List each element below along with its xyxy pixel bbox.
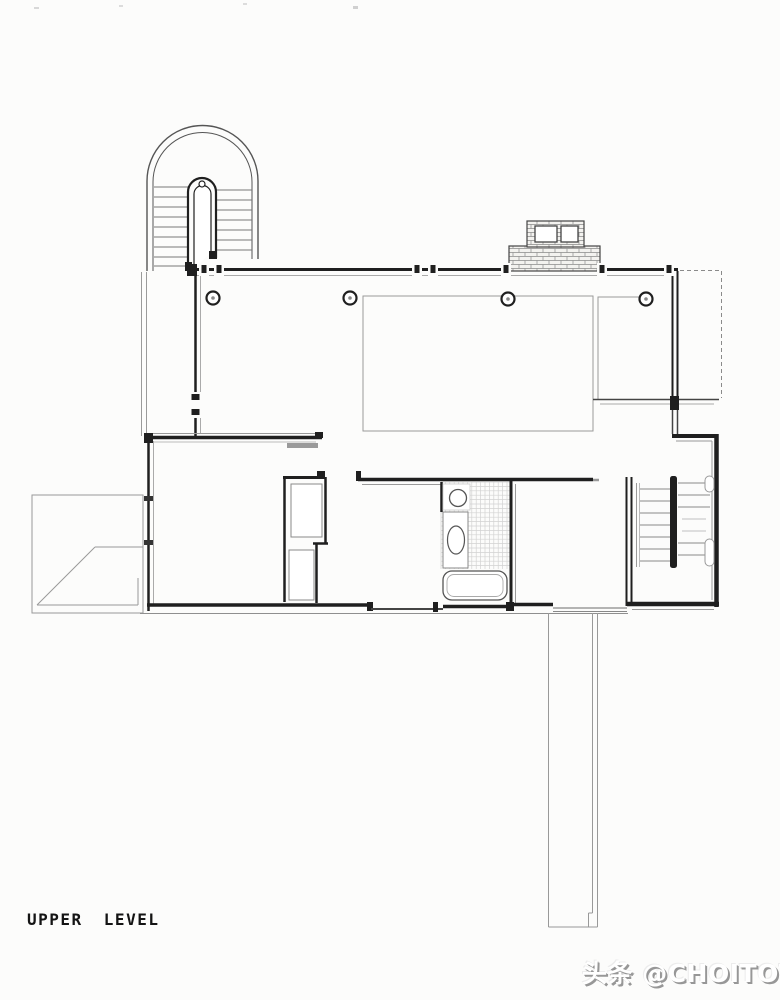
wall-end-knob (315, 432, 323, 438)
floor-plan-page: UPPER LEVEL 头条 @CHOITOTO (0, 0, 780, 1000)
stair-wall-capsule (705, 476, 714, 492)
wall-break-tick (217, 265, 222, 273)
chimney-flue (561, 226, 578, 242)
floor-plan-geometry (32, 3, 722, 927)
wall-junction-block (670, 396, 679, 410)
wall-break-tick (144, 496, 153, 501)
registration-speck (119, 5, 123, 7)
wall-corner-block (144, 433, 153, 443)
wall-break-tick (600, 265, 605, 273)
wall-break-tick (192, 394, 200, 400)
registration-speck (243, 3, 247, 5)
column-dot (644, 297, 648, 301)
column-dot (211, 296, 215, 300)
chimney-base (509, 246, 600, 271)
wall-break-tick (202, 265, 207, 273)
deck-ramp-diagonal (37, 547, 95, 605)
floor-plan-svg (0, 0, 780, 1000)
rail-foot (209, 251, 217, 259)
closet-box (289, 550, 314, 600)
closet-box (291, 484, 322, 537)
south-wall-jog (506, 602, 514, 611)
wall-break-tick (192, 409, 200, 415)
tower-newel-knob (199, 181, 205, 187)
stair-wall-capsule (705, 539, 714, 566)
registration-speck (353, 6, 358, 9)
column-dot (348, 296, 352, 300)
open-to-below-outline (363, 296, 593, 431)
wall-break-tick (504, 265, 509, 273)
shelf (287, 443, 318, 448)
wall-break-tick (667, 265, 672, 273)
wall-break-tick (433, 602, 438, 612)
wall-end-knob (317, 471, 325, 477)
chimney-flue (535, 226, 557, 242)
wall-break-tick (415, 265, 420, 273)
column-dot (506, 297, 510, 301)
wall-break-tick (144, 540, 153, 545)
watermark: 头条 @CHOITOTO (582, 954, 780, 990)
bathtub (443, 571, 507, 600)
ne-bedroom-outline (598, 297, 639, 399)
toilet-bowl (450, 490, 467, 507)
wall-break-tick (431, 265, 436, 273)
registration-speck (34, 7, 39, 9)
drawing-title: UPPER LEVEL (27, 910, 159, 929)
stair-center-rail (670, 476, 677, 568)
sink-basin (448, 526, 465, 554)
tower-rail-inner (194, 186, 211, 270)
